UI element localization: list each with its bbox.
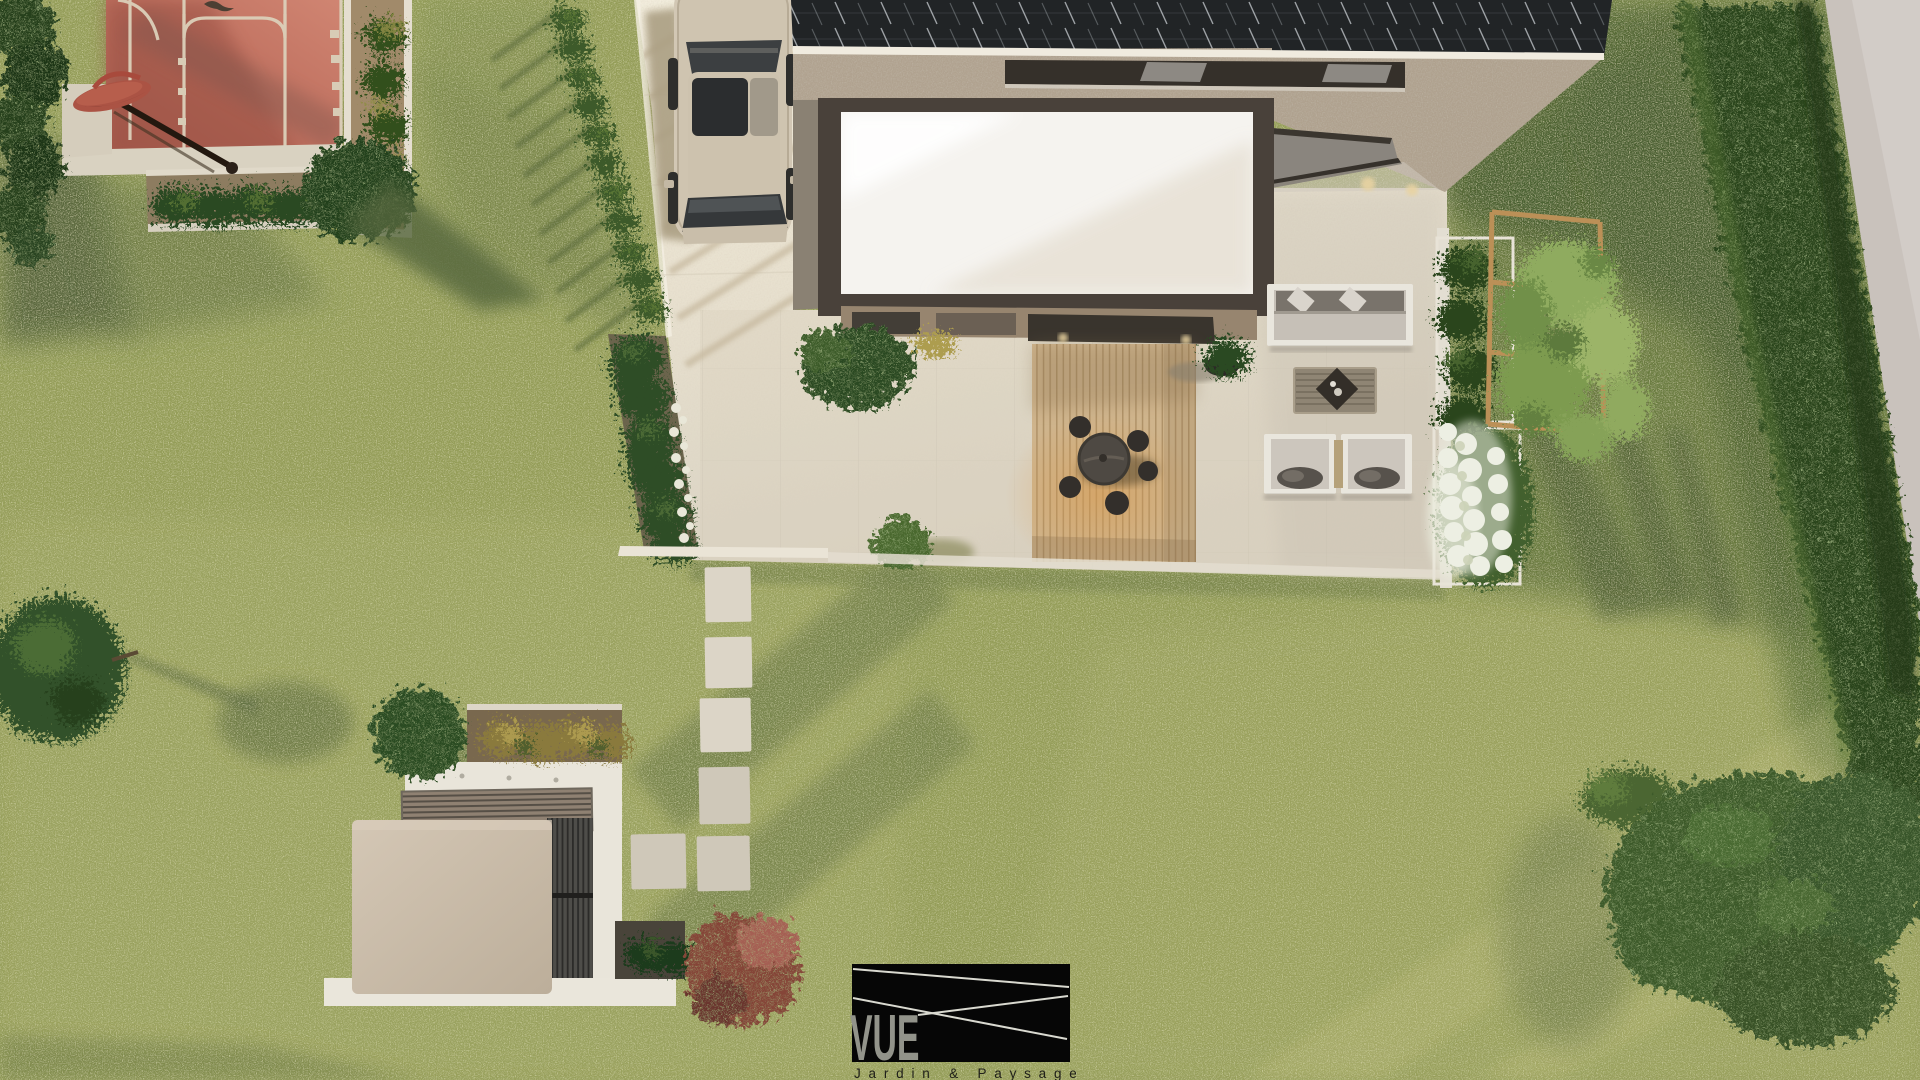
svg-text:Jardin & Paysage: Jardin & Paysage xyxy=(854,1066,1085,1080)
svg-text:VUE: VUE xyxy=(850,1001,919,1074)
